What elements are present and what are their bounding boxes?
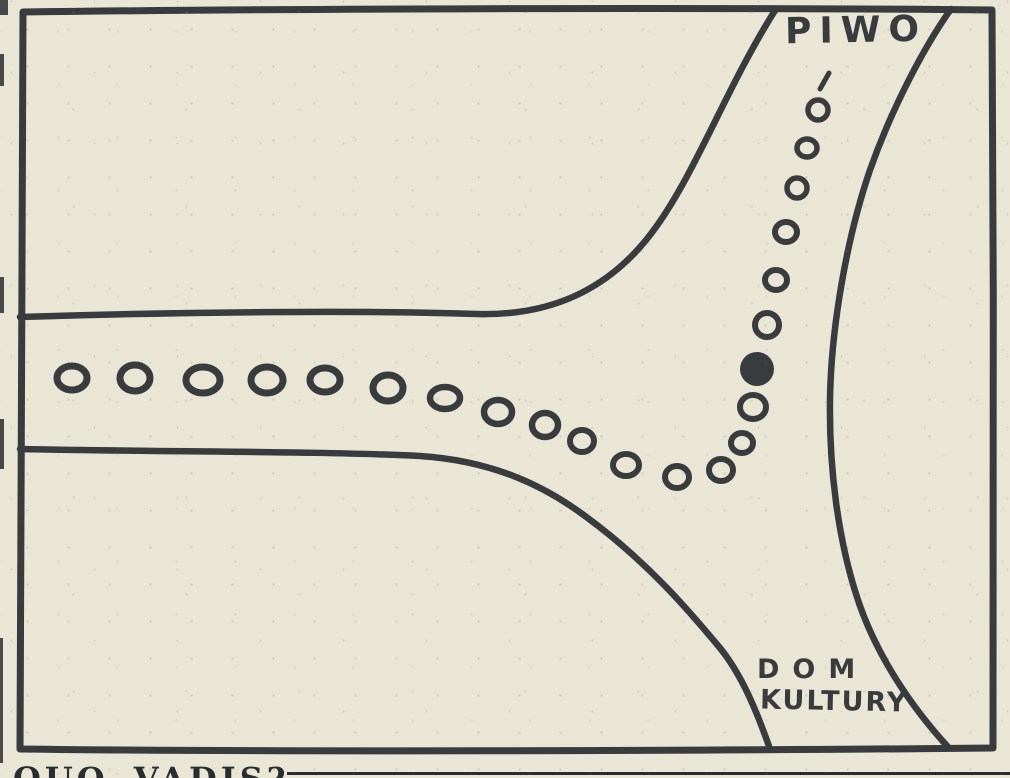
road-edge-upper — [20, 9, 776, 317]
caption-rule — [287, 772, 1010, 775]
footprint — [120, 365, 150, 391]
footprint — [186, 367, 220, 393]
frame-border — [20, 9, 994, 751]
footprint — [570, 430, 594, 452]
caption-quo-vadis: QUO VADIS? — [13, 760, 290, 778]
road-edge-right — [830, 9, 951, 747]
footprint-filled — [740, 352, 774, 386]
road-edge-lower — [20, 449, 770, 749]
scanned-cartoon-page: PIWO DOM KULTURY QUO VADIS? — [0, 0, 1010, 778]
footprint — [251, 367, 283, 393]
footprint — [808, 100, 828, 120]
footprint — [665, 466, 689, 488]
trail-fade-tick — [820, 73, 829, 89]
footprint — [731, 433, 753, 453]
footprint — [532, 413, 558, 437]
label-piwo: PIWO — [785, 9, 928, 52]
footprint — [57, 366, 87, 390]
footprint — [797, 139, 817, 157]
footprint — [740, 395, 766, 419]
label-dom-kultury-line1: DOM — [757, 654, 868, 685]
footprint — [787, 178, 807, 198]
footprint — [613, 454, 639, 476]
footprints-trail — [57, 73, 829, 488]
footprint — [430, 387, 460, 409]
footprint — [310, 368, 340, 392]
footprint — [373, 375, 403, 401]
footprint — [484, 400, 512, 424]
footprint — [709, 459, 733, 481]
footprint — [775, 222, 797, 242]
footprint — [755, 313, 779, 337]
page-edge-artifacts — [0, 0, 8, 763]
footprint — [765, 270, 787, 290]
label-dom-kultury-line2: KULTURY — [760, 684, 909, 718]
